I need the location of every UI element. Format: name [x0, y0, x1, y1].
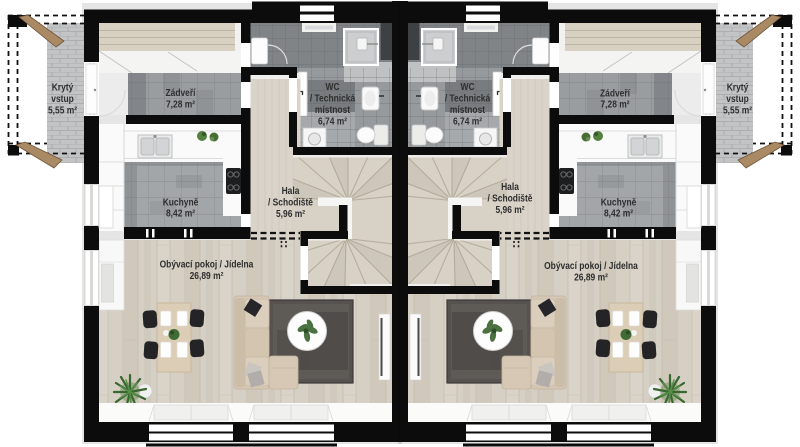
svg-text:Krytý: Krytý	[727, 81, 749, 93]
svg-text:Obývací pokoj / Jídelna: Obývací pokoj / Jídelna	[544, 259, 638, 271]
svg-text:Hala: Hala	[501, 180, 520, 192]
svg-text:8,42 m²: 8,42 m²	[166, 207, 195, 219]
svg-text:WC: WC	[325, 80, 339, 92]
svg-text:26,89 m²: 26,89 m²	[190, 269, 224, 281]
svg-text:místnost: místnost	[450, 103, 486, 115]
svg-text:6,74 m²: 6,74 m²	[318, 115, 347, 127]
svg-text:vstup: vstup	[726, 92, 749, 104]
svg-text:7,28 m²: 7,28 m²	[600, 98, 629, 110]
svg-text:Zádveří: Zádveří	[165, 86, 195, 98]
svg-text:Hala: Hala	[282, 184, 301, 196]
svg-text:8,42 m²: 8,42 m²	[604, 207, 633, 219]
svg-text:26,89 m²: 26,89 m²	[574, 271, 608, 283]
svg-text:5,96 m²: 5,96 m²	[276, 207, 305, 219]
svg-text:5,55 m²: 5,55 m²	[723, 104, 752, 116]
svg-text:6,74 m²: 6,74 m²	[453, 115, 482, 127]
svg-text:5,96 m²: 5,96 m²	[495, 203, 524, 215]
svg-text:místnost: místnost	[315, 103, 351, 115]
svg-text:5,55 m²: 5,55 m²	[48, 104, 77, 116]
svg-text:Krytý: Krytý	[52, 81, 74, 93]
svg-text:/ Technická: / Technická	[445, 92, 491, 104]
svg-text:vstup: vstup	[51, 92, 74, 104]
svg-text:Obývací pokoj / Jídelna: Obývací pokoj / Jídelna	[160, 258, 254, 270]
svg-text:7,28 m²: 7,28 m²	[166, 98, 195, 110]
svg-text:/ Schodiště: / Schodiště	[487, 192, 532, 204]
svg-text:/ Schodiště: / Schodiště	[268, 196, 313, 208]
svg-text:WC: WC	[460, 80, 474, 92]
svg-text:/ Technická: / Technická	[310, 92, 356, 104]
